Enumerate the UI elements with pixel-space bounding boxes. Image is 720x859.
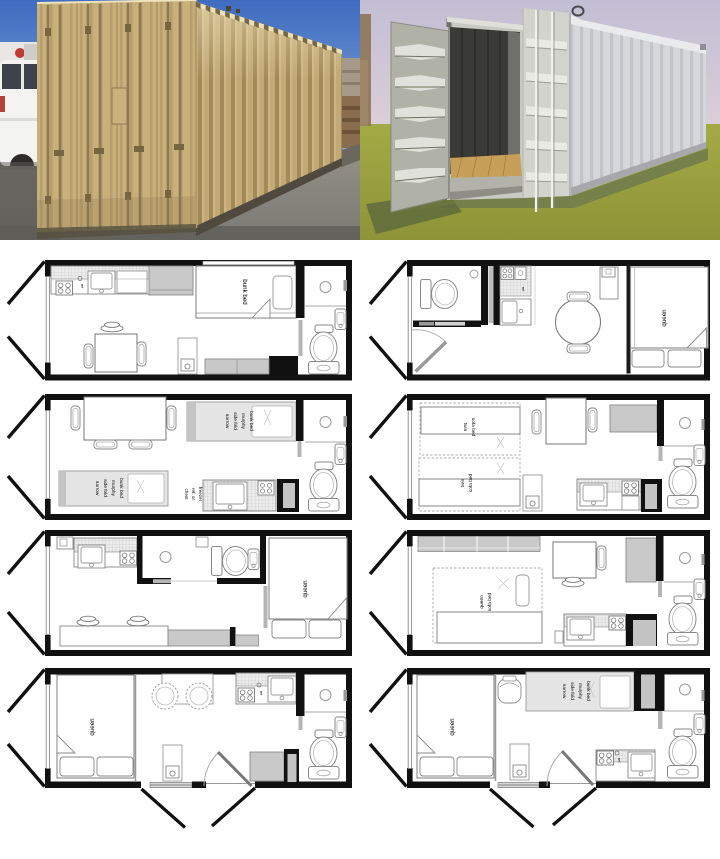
svg-text:side fold: side fold: [102, 479, 108, 497]
svg-text:queen: queen: [89, 718, 96, 736]
svg-text:bunk bed: bunk bed: [118, 478, 124, 498]
svg-text:freezer: freezer: [198, 487, 203, 502]
svg-text:queen: queen: [449, 718, 456, 736]
svg-text:sofa bed: sofa bed: [487, 592, 493, 611]
svg-text:murphy: murphy: [577, 683, 583, 700]
svg-text:murphy: murphy: [110, 480, 116, 497]
svg-text:bunk bed: bunk bed: [248, 411, 254, 431]
svg-text:queen: queen: [302, 580, 309, 598]
svg-text:narrow: narrow: [94, 481, 100, 496]
svg-text:narrow: narrow: [224, 414, 230, 429]
svg-text:sofa bed: sofa bed: [468, 473, 474, 492]
svg-text:ref. or: ref. or: [191, 488, 196, 500]
svg-text:twin: twin: [462, 423, 468, 432]
svg-text:sofa bed: sofa bed: [470, 418, 476, 437]
svg-text:bunk bed: bunk bed: [241, 279, 248, 305]
svg-text:queen: queen: [480, 595, 485, 609]
svg-text:side fold: side fold: [232, 412, 238, 430]
svg-text:narrow: narrow: [561, 684, 567, 699]
svg-text:twin: twin: [460, 478, 466, 487]
svg-text:side fold: side fold: [569, 682, 575, 700]
svg-text:bunk bed: bunk bed: [585, 681, 591, 701]
svg-text:queen: queen: [661, 309, 668, 327]
svg-text:murphy: murphy: [240, 413, 246, 430]
svg-text:chest: chest: [184, 489, 189, 501]
